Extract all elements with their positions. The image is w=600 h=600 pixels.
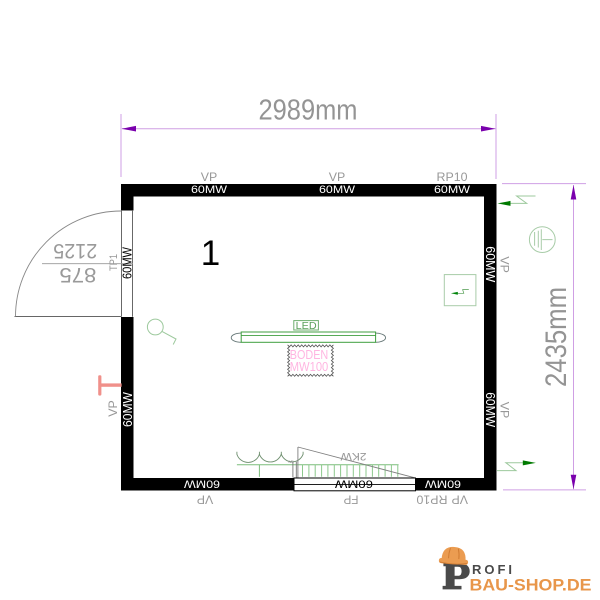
svg-text:MW100: MW100 xyxy=(290,359,329,374)
svg-text:60MW: 60MW xyxy=(191,184,228,196)
svg-text:60MW: 60MW xyxy=(434,184,471,196)
svg-text:2125: 2125 xyxy=(53,239,97,262)
svg-text:60MW: 60MW xyxy=(121,247,135,279)
svg-text:FP: FP xyxy=(343,493,358,505)
svg-text:60MW: 60MW xyxy=(319,184,356,196)
svg-text:2435mm: 2435mm xyxy=(540,287,573,387)
svg-text:RP10: RP10 xyxy=(417,493,448,505)
svg-text:VP: VP xyxy=(108,400,120,417)
svg-text:60MW: 60MW xyxy=(334,477,373,489)
svg-text:60MW: 60MW xyxy=(121,392,135,427)
svg-text:VP: VP xyxy=(498,256,510,273)
svg-text:2KW: 2KW xyxy=(340,450,367,462)
svg-text:VP: VP xyxy=(498,402,510,419)
svg-text:VP: VP xyxy=(196,493,213,505)
svg-text:60MW: 60MW xyxy=(483,246,497,282)
svg-text:VP: VP xyxy=(201,172,218,184)
svg-text:60MW: 60MW xyxy=(483,392,497,427)
svg-text:TP1: TP1 xyxy=(108,254,120,271)
svg-text:60MW: 60MW xyxy=(424,478,461,490)
svg-text:60MW: 60MW xyxy=(183,478,220,490)
svg-text:WD: WD xyxy=(288,460,294,464)
svg-text:BAU-SHOP.DE: BAU-SHOP.DE xyxy=(470,576,592,595)
svg-text:VP: VP xyxy=(329,172,346,184)
svg-text:LED: LED xyxy=(296,320,317,332)
svg-text:RP10: RP10 xyxy=(437,172,468,184)
svg-text:875: 875 xyxy=(59,263,96,286)
svg-text:2989mm: 2989mm xyxy=(259,95,358,127)
svg-text:1: 1 xyxy=(201,234,220,273)
svg-text:VP: VP xyxy=(451,493,468,505)
